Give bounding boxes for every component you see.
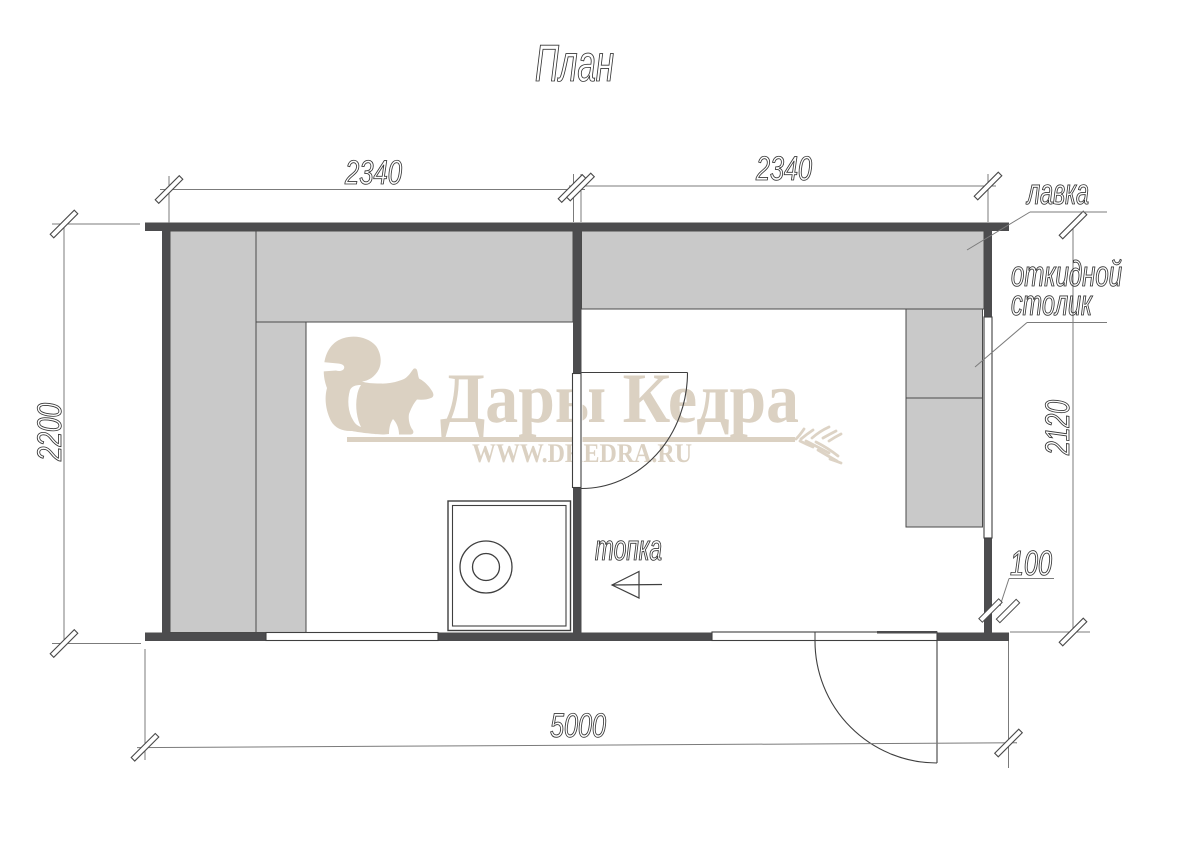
svg-text:Дары Кедра: Дары Кедра: [440, 360, 799, 438]
